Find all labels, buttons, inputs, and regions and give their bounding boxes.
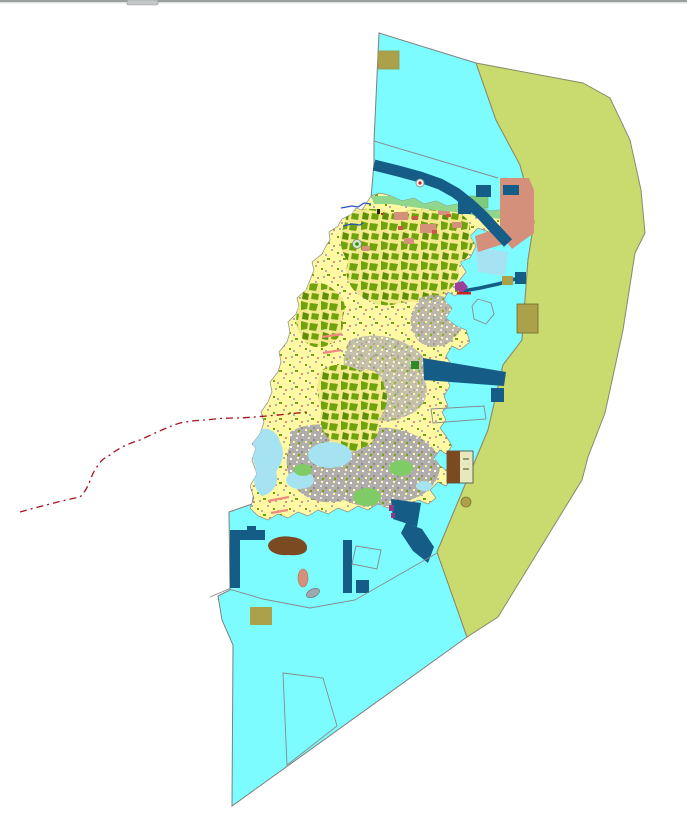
pond-southeast	[416, 481, 432, 491]
divider-drag-tab[interactable]	[127, 0, 158, 5]
salmon-islet	[298, 569, 308, 587]
marine-rect-n2	[458, 200, 471, 214]
khaki-site-east	[517, 304, 538, 333]
khaki-islet	[461, 497, 471, 507]
green-patch-south	[353, 488, 381, 506]
window-divider	[0, 0, 687, 5]
khaki-site-north	[378, 51, 399, 69]
marine-square-south	[356, 580, 369, 593]
marine-bar-south	[343, 540, 352, 593]
marine-rect-n1	[476, 185, 491, 197]
green-patch-west	[294, 464, 312, 476]
divider-bar	[0, 0, 687, 2]
green-patch-south2	[389, 460, 413, 476]
marine-rect-n3	[503, 185, 519, 195]
marine-rect-e1	[515, 272, 526, 284]
khaki-site-east-small	[502, 276, 513, 285]
pond-mid	[308, 442, 352, 468]
divider-highlight	[0, 2, 687, 3]
marine-rect-e2	[491, 388, 504, 402]
pier-red	[457, 292, 471, 295]
zoning-map-canvas[interactable]	[0, 0, 687, 821]
map-viewport[interactable]	[0, 0, 687, 821]
jetty-west-notch	[247, 526, 256, 530]
khaki-site-southwest	[250, 607, 272, 625]
boxed-site-east	[447, 451, 473, 483]
